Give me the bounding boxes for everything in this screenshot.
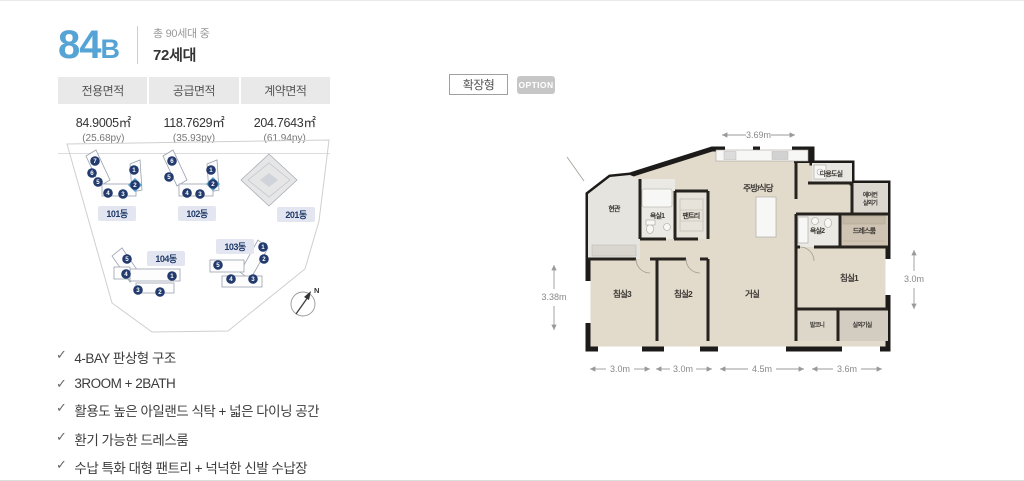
- svg-text:3.0m: 3.0m: [610, 364, 630, 374]
- building-label-101: 101동: [98, 206, 136, 221]
- building-104: 5 4 1 3 2 104동: [112, 248, 185, 297]
- building-103: 1 2 5 4 3 103동: [210, 239, 269, 287]
- svg-text:5: 5: [96, 179, 100, 186]
- building-102: 6 5 1 2 4 3 102동: [163, 150, 220, 221]
- feature-item: ✓환기 가능한 드레스룸: [56, 429, 319, 449]
- wardrobe-icon: [843, 216, 885, 224]
- svg-text:2: 2: [158, 289, 162, 296]
- svg-text:104동: 104동: [155, 254, 177, 264]
- page: 84B 총 90세대 중 72세대 전용면적 공급면적 계약면적 84.9005…: [0, 0, 1024, 481]
- floor-plan: 현관 욕실1 팬트리 주방/식당 다용도실 에어컨 실외기 욕실2 드레스룸 침…: [540, 119, 940, 384]
- svg-text:6: 6: [170, 158, 174, 165]
- col-exclusive-area: 전용면적: [58, 77, 147, 104]
- dimension-bottom: 3.0m 3.0m 4.5m 3.6m: [590, 364, 882, 374]
- building-label-201: 201동: [277, 207, 315, 222]
- svg-text:2: 2: [133, 182, 137, 189]
- svg-text:7: 7: [93, 158, 97, 165]
- area-table-header: 전용면적 공급면적 계약면적: [58, 77, 330, 104]
- svg-text:5: 5: [216, 262, 220, 269]
- svg-text:1: 1: [209, 167, 213, 174]
- building-label-103: 103동: [216, 239, 254, 254]
- svg-text:4.5m: 4.5m: [752, 364, 772, 374]
- unit-number: 84: [58, 23, 101, 67]
- room-label-living: 거실: [745, 289, 760, 299]
- site-boundary: [67, 140, 329, 332]
- svg-text:3: 3: [121, 191, 125, 198]
- building-101: 7 6 5 1 2 4 3 101동: [86, 150, 142, 221]
- svg-text:102동: 102동: [186, 209, 208, 219]
- svg-text:6: 6: [90, 170, 94, 177]
- svg-text:2: 2: [262, 256, 266, 263]
- col-contract-area: 계약면적: [239, 77, 330, 104]
- plan-type-button[interactable]: 확장형: [449, 74, 508, 95]
- room-label-bath1: 욕실1: [650, 211, 665, 220]
- svg-text:4: 4: [185, 190, 189, 197]
- building-label-104: 104동: [147, 251, 185, 266]
- room-label-pantry: 팬트리: [683, 211, 700, 220]
- building-201: 201동: [241, 154, 315, 222]
- bath1-floor: [640, 179, 675, 239]
- bathtub-icon: [642, 189, 672, 207]
- check-icon: ✓: [56, 429, 66, 445]
- kitchen-island: [756, 197, 776, 237]
- room-label-entrance: 현관: [608, 204, 621, 213]
- entrance-door-line: [567, 157, 584, 181]
- check-icon: ✓: [56, 347, 66, 363]
- feature-item: ✓수납 특화 대형 팬트리 + 넉넉한 신발 수납장: [56, 457, 319, 477]
- total-households-label: 총 90세대 중: [153, 25, 209, 41]
- site-plan: 7 6 5 1 2 4 3 101동 6 5 1 2 4 3: [50, 136, 340, 351]
- svg-text:3: 3: [251, 276, 255, 283]
- room-label-ac-1: 에어컨: [863, 191, 878, 199]
- washbasin-icon: [664, 224, 671, 231]
- unit-type-header: 84B 총 90세대 중 72세대: [58, 25, 209, 65]
- svg-text:3.6m: 3.6m: [837, 364, 857, 374]
- cooktop-icon: [772, 152, 788, 160]
- option-button[interactable]: OPTION: [517, 76, 555, 94]
- svg-text:5: 5: [167, 174, 171, 181]
- svg-text:201동: 201동: [285, 210, 307, 220]
- unit-letter: B: [101, 34, 120, 64]
- room-label-kitchen: 주방/식당: [743, 183, 774, 193]
- check-icon: ✓: [56, 400, 66, 416]
- room-label-utility: 다용도실: [820, 169, 843, 178]
- room-label-bed2: 침실2: [674, 289, 693, 299]
- svg-text:4: 4: [124, 271, 128, 278]
- svg-text:N: N: [314, 286, 319, 295]
- dimension-left: 3.38m: [541, 265, 566, 330]
- feature-item: ✓활용도 높은 아일랜드 식탁 + 넓은 다이닝 공간: [56, 400, 319, 420]
- svg-text:1: 1: [132, 167, 136, 174]
- compass-north-icon: N: [291, 286, 319, 316]
- svg-text:2: 2: [211, 181, 215, 188]
- svg-text:5: 5: [125, 256, 129, 263]
- svg-text:3.0m: 3.0m: [904, 274, 924, 284]
- svg-text:3.38m: 3.38m: [541, 292, 566, 302]
- check-icon: ✓: [56, 457, 66, 473]
- unit-households-count: 72세대: [153, 44, 209, 65]
- col-supply-area: 공급면적: [147, 77, 238, 104]
- vanity-icon: [798, 217, 808, 243]
- feature-item: ✓3ROOM + 2BATH: [56, 376, 319, 392]
- svg-text:4: 4: [106, 190, 110, 197]
- svg-text:3.69m: 3.69m: [746, 130, 771, 140]
- svg-text:1: 1: [170, 273, 174, 280]
- washbasin-icon: [812, 218, 819, 225]
- header-divider: [137, 26, 138, 64]
- svg-text:3: 3: [136, 287, 140, 294]
- check-icon: ✓: [56, 376, 66, 392]
- room-label-bed1: 침실1: [840, 273, 859, 283]
- room-label-ac-2: 실외기: [863, 199, 877, 207]
- room-label-balcony: 발코니: [810, 321, 824, 329]
- room-label-bath2: 욕실2: [810, 226, 825, 235]
- svg-text:4: 4: [229, 276, 233, 283]
- dimension-top: 3.69m: [722, 130, 795, 140]
- building-label-102: 102동: [178, 206, 216, 221]
- sink-icon: [724, 152, 736, 160]
- feature-item: ✓4-BAY 판상형 구조: [56, 347, 319, 367]
- svg-text:1: 1: [261, 244, 265, 251]
- svg-text:3.0m: 3.0m: [673, 364, 693, 374]
- shoe-cabinet: [592, 245, 636, 256]
- svg-text:3: 3: [198, 191, 202, 198]
- room-label-dressroom: 드레스룸: [853, 226, 877, 235]
- toilet-icon: [825, 219, 832, 228]
- svg-text:101동: 101동: [106, 209, 128, 219]
- dimension-right: 3.0m: [904, 250, 924, 309]
- unit-type-title: 84B: [58, 25, 119, 65]
- room-label-bed3: 침실3: [613, 289, 632, 299]
- toilet-icon: [647, 225, 654, 234]
- svg-text:103동: 103동: [224, 242, 246, 252]
- feature-list: ✓4-BAY 판상형 구조 ✓3ROOM + 2BATH ✓활용도 높은 아일랜…: [56, 347, 319, 481]
- room-label-outdoor-unit: 실외기실: [853, 321, 873, 329]
